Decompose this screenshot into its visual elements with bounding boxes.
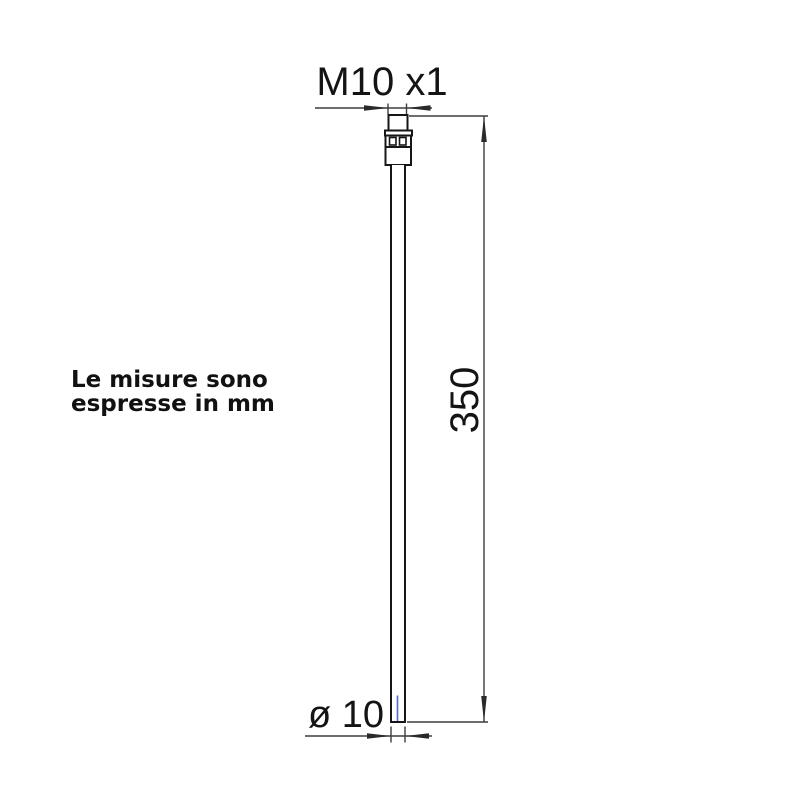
- thread-dimension-label: M10 x1: [316, 60, 447, 104]
- dimension-drawing: M10 x1 350: [0, 0, 800, 800]
- diameter-dimension: ø 10: [305, 694, 432, 743]
- technical-drawing-page: M10 x1 350: [0, 0, 800, 800]
- arrow-right-icon: [364, 105, 388, 111]
- units-note: Le misure sono espresse in mm: [71, 367, 275, 417]
- arrow-up-icon: [481, 116, 487, 142]
- units-note-line1: Le misure sono: [71, 367, 268, 393]
- thread-dimension: M10 x1: [315, 60, 448, 115]
- diameter-dimension-label: ø 10: [308, 694, 384, 736]
- tube: [391, 165, 405, 722]
- fitting-thread-rect: [389, 115, 408, 131]
- threaded-fitting: [385, 115, 412, 165]
- arrow-down-icon: [481, 696, 487, 722]
- length-dimension: 350: [407, 116, 488, 722]
- length-dimension-label: 350: [443, 367, 487, 434]
- fitting-nut-window-left: [390, 138, 397, 146]
- fitting-nut-window-right: [400, 138, 407, 146]
- arrow-left-icon: [405, 733, 429, 739]
- tube-outline: [391, 165, 405, 722]
- arrow-left-icon: [407, 105, 431, 111]
- units-note-line2: espresse in mm: [71, 391, 275, 417]
- fitting-body-rect: [386, 147, 412, 165]
